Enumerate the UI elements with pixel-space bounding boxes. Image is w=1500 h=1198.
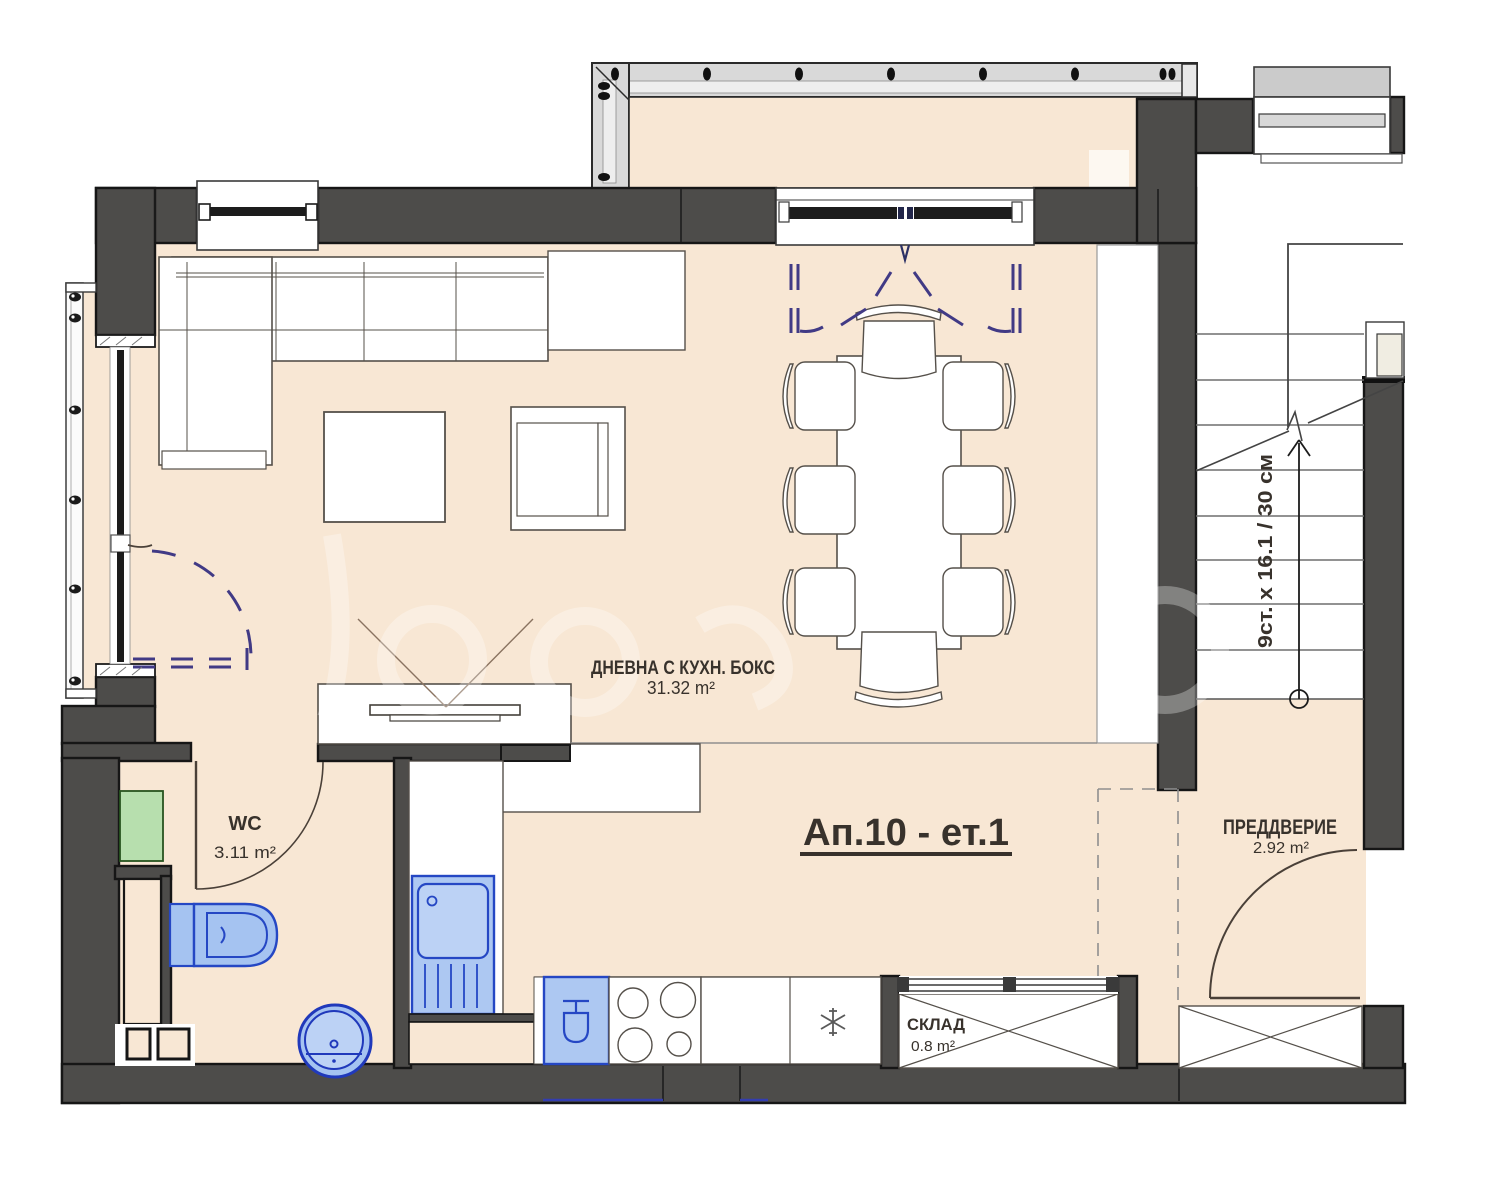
svg-text:0.8 m²: 0.8 m² [911, 1038, 955, 1055]
svg-text:2.92 m²: 2.92 m² [1253, 840, 1310, 857]
svg-text:9ст. x 16.1 / 30 см: 9ст. x 16.1 / 30 см [1255, 454, 1277, 648]
svg-text:WC: WC [228, 813, 261, 835]
svg-text:Ап.10 - ет.1: Ап.10 - ет.1 [803, 812, 1009, 854]
svg-text:3.11 m²: 3.11 m² [214, 843, 276, 862]
svg-text:СКЛАД: СКЛАД [907, 1015, 965, 1034]
svg-text:31.32 m²: 31.32 m² [647, 678, 715, 698]
svg-text:ПРЕДДВЕРИЕ: ПРЕДДВЕРИЕ [1223, 816, 1337, 839]
svg-text:ДНЕВНА С КУХН. БОКС: ДНЕВНА С КУХН. БОКС [591, 658, 775, 679]
